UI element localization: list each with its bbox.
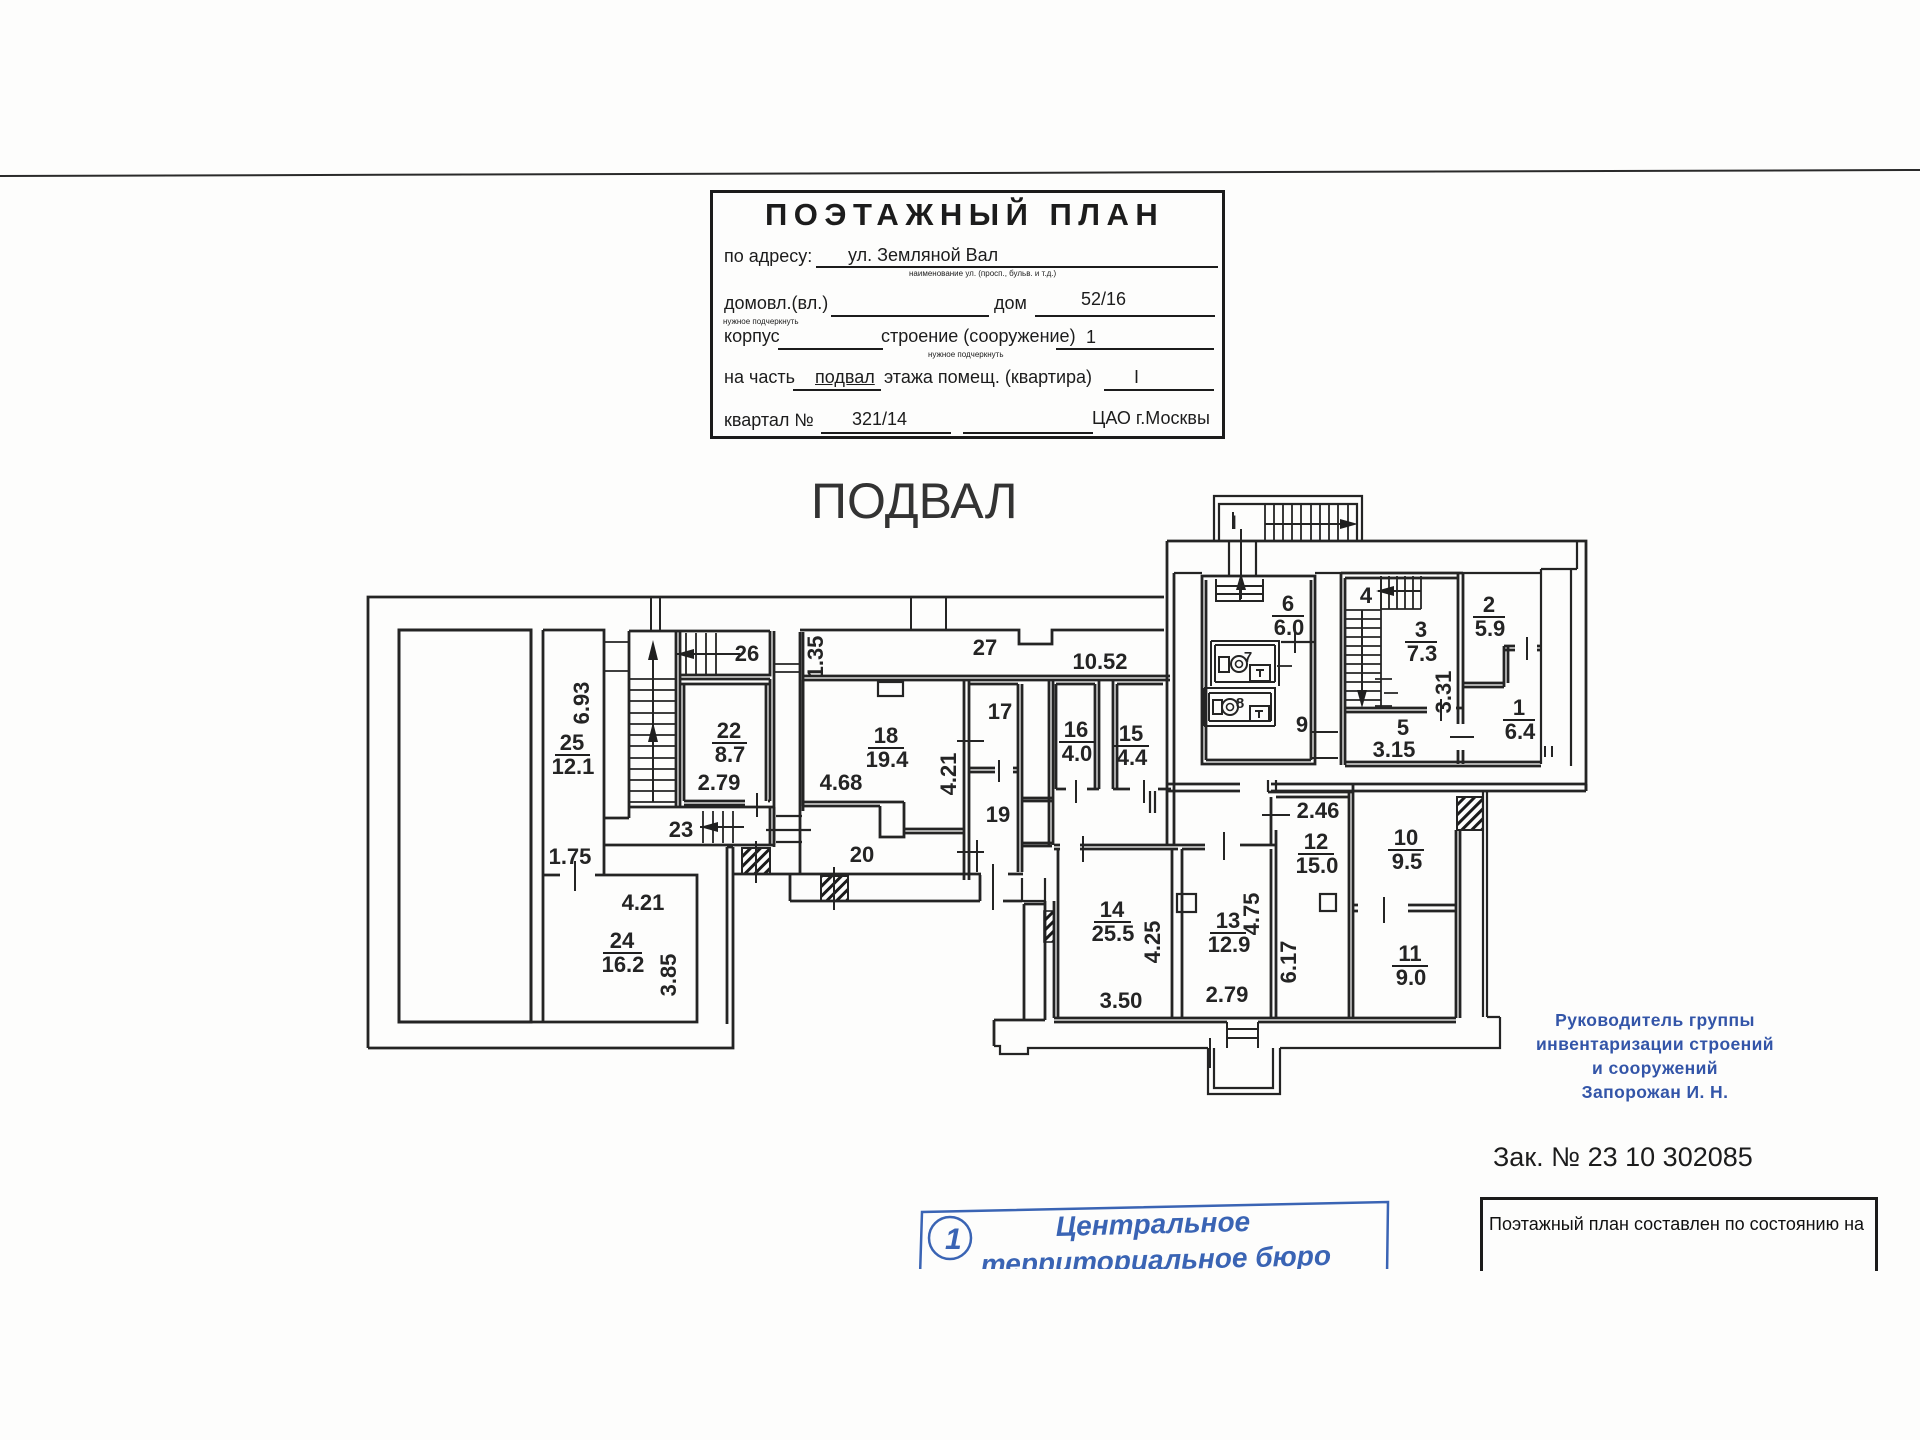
- svg-text:19.4: 19.4: [866, 747, 910, 772]
- svg-text:4.0: 4.0: [1062, 741, 1093, 766]
- svg-text:14: 14: [1100, 897, 1125, 922]
- svg-text:8.7: 8.7: [715, 742, 746, 767]
- svg-text:1: 1: [945, 1223, 962, 1256]
- svg-text:3.15: 3.15: [1373, 737, 1416, 762]
- svg-text:12: 12: [1304, 829, 1328, 854]
- svg-text:11: 11: [1398, 941, 1421, 966]
- svg-text:7.3: 7.3: [1407, 641, 1438, 666]
- svg-text:16: 16: [1064, 717, 1088, 742]
- svg-text:4.21: 4.21: [622, 890, 665, 915]
- svg-text:4.75: 4.75: [1239, 893, 1264, 936]
- svg-text:15.0: 15.0: [1296, 853, 1339, 878]
- svg-text:6: 6: [1282, 591, 1294, 616]
- svg-text:3: 3: [1415, 617, 1427, 642]
- svg-text:2.79: 2.79: [698, 770, 741, 795]
- svg-text:5.9: 5.9: [1475, 616, 1506, 641]
- svg-text:22: 22: [717, 718, 741, 743]
- svg-text:1.35: 1.35: [803, 636, 828, 679]
- svg-text:4.21: 4.21: [936, 753, 961, 796]
- svg-text:4.25: 4.25: [1140, 921, 1165, 964]
- svg-text:27: 27: [973, 635, 997, 660]
- svg-text:12.1: 12.1: [552, 754, 595, 779]
- svg-text:6.17: 6.17: [1276, 941, 1301, 984]
- svg-text:15: 15: [1119, 721, 1143, 746]
- svg-text:9: 9: [1296, 712, 1308, 737]
- svg-text:4.68: 4.68: [820, 770, 863, 795]
- svg-text:3.85: 3.85: [656, 954, 681, 997]
- svg-text:6.4: 6.4: [1505, 719, 1536, 744]
- svg-text:25: 25: [560, 730, 584, 755]
- svg-text:23: 23: [669, 817, 693, 842]
- svg-text:16.2: 16.2: [602, 952, 645, 977]
- svg-text:10.52: 10.52: [1072, 649, 1127, 674]
- svg-text:2.79: 2.79: [1206, 982, 1249, 1007]
- svg-text:19: 19: [986, 802, 1010, 827]
- svg-text:6.93: 6.93: [569, 682, 594, 725]
- svg-text:территориальное бюро: территориальное бюро: [980, 1240, 1331, 1269]
- svg-text:3.50: 3.50: [1100, 988, 1143, 1013]
- svg-text:1.75: 1.75: [549, 844, 592, 869]
- svg-text:1: 1: [1513, 695, 1525, 720]
- svg-text:4.4: 4.4: [1117, 745, 1148, 770]
- svg-text:6.0: 6.0: [1274, 615, 1305, 640]
- svg-text:2: 2: [1483, 592, 1495, 617]
- svg-text:Центральное: Центральное: [1055, 1206, 1250, 1242]
- svg-text:4: 4: [1360, 583, 1373, 608]
- svg-text:2.46: 2.46: [1297, 798, 1340, 823]
- svg-text:3.31: 3.31: [1431, 671, 1456, 714]
- svg-text:26: 26: [735, 641, 759, 666]
- svg-text:24: 24: [610, 928, 635, 953]
- svg-text:I: I: [1231, 513, 1236, 534]
- svg-text:20: 20: [850, 842, 874, 867]
- svg-text:9.5: 9.5: [1392, 849, 1423, 874]
- svg-text:17: 17: [988, 699, 1012, 724]
- svg-text:7: 7: [1244, 649, 1252, 666]
- svg-text:9.0: 9.0: [1396, 965, 1427, 990]
- svg-text:13: 13: [1216, 908, 1240, 933]
- svg-text:25.5: 25.5: [1092, 921, 1135, 946]
- svg-text:8: 8: [1236, 695, 1244, 712]
- svg-text:10: 10: [1394, 825, 1418, 850]
- svg-text:18: 18: [874, 723, 898, 748]
